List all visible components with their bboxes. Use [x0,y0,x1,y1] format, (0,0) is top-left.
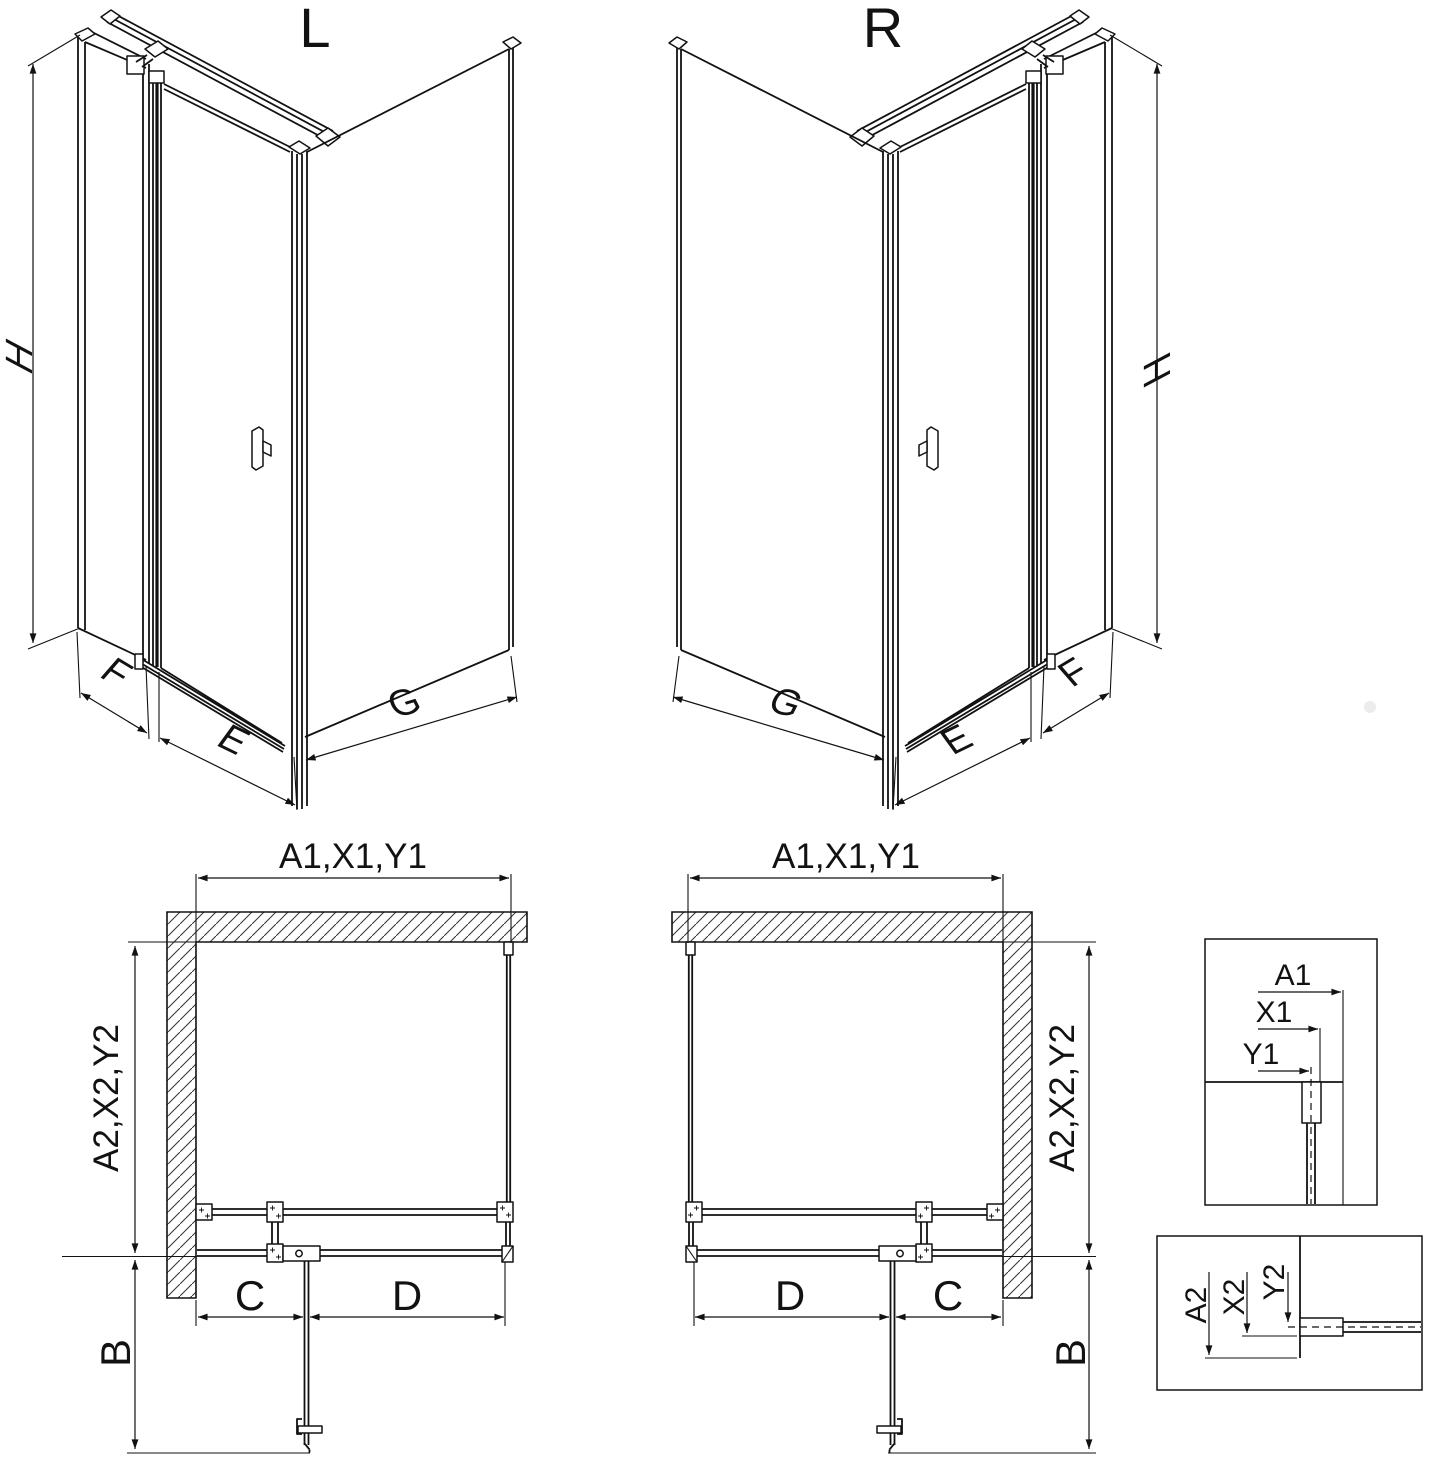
left-dim-g-label: G [380,679,428,726]
detail-a1-label: A1 [1275,959,1312,992]
right-plan-b-label: B [1047,1339,1094,1367]
right-plan-dim-c: C [896,1272,1001,1319]
left-dim-h-label: H [0,331,40,381]
detail-x1-label: X1 [1256,996,1293,1029]
left-3d-view: L H F E G [0,0,521,810]
right-3d-view: R H G E F [669,0,1178,810]
drawing-canvas: L H F E G R H G E F A1,X1,Y1 A2,X2,Y2 [0,0,1430,1460]
right-view-label: R [863,0,903,59]
left-plan-view: A1,X1,Y1 A2,X2,Y2 C D B [62,837,527,1453]
right-dim-f-label: F [1050,650,1098,695]
left-dim-f-label: F [92,650,140,695]
detail-y2-label: Y2 [1258,1264,1291,1301]
right-plan-width-label: A1,X1,Y1 [772,837,920,876]
detail-y1-label: Y1 [1243,1038,1280,1071]
detail-inset-bottom: A2 X2 Y2 [1157,1236,1422,1390]
right-plan-c-label: C [933,1272,963,1319]
wall-section-right-plan [672,912,1032,1298]
detail-x2-label: X2 [1218,1279,1251,1316]
left-view-label: L [299,0,330,59]
detail-inset-top: A1 X1 Y1 [1205,939,1377,1205]
left-plan-c-label: C [235,1272,265,1319]
right-dim-e-label: E [932,717,980,763]
wall-section-left-plan [167,912,527,1298]
print-artifact-dot [1364,701,1376,713]
left-plan-d-label: D [392,1272,422,1319]
left-plan-width-label: A1,X1,Y1 [279,837,427,876]
left-plan-depth-label: A2,X2,Y2 [87,1024,126,1172]
right-plan-depth-label: A2,X2,Y2 [1043,1024,1082,1172]
left-dim-e-label: E [209,717,257,763]
left-plan-dim-b: B [92,1260,310,1453]
right-plan-dim-b: B [888,1260,1096,1453]
detail-a2-label: A2 [1180,1287,1213,1324]
right-plan-d-label: D [775,1272,805,1319]
shower-enclosure-technical-drawing: L H F E G R H G E F A1,X1,Y1 A2,X2,Y2 [0,0,1430,1460]
left-plan-b-label: B [92,1339,139,1367]
left-plan-dim-d: D [310,1272,504,1319]
right-plan-view: A1,X1,Y1 A2,X2,Y2 D C B [672,837,1096,1453]
